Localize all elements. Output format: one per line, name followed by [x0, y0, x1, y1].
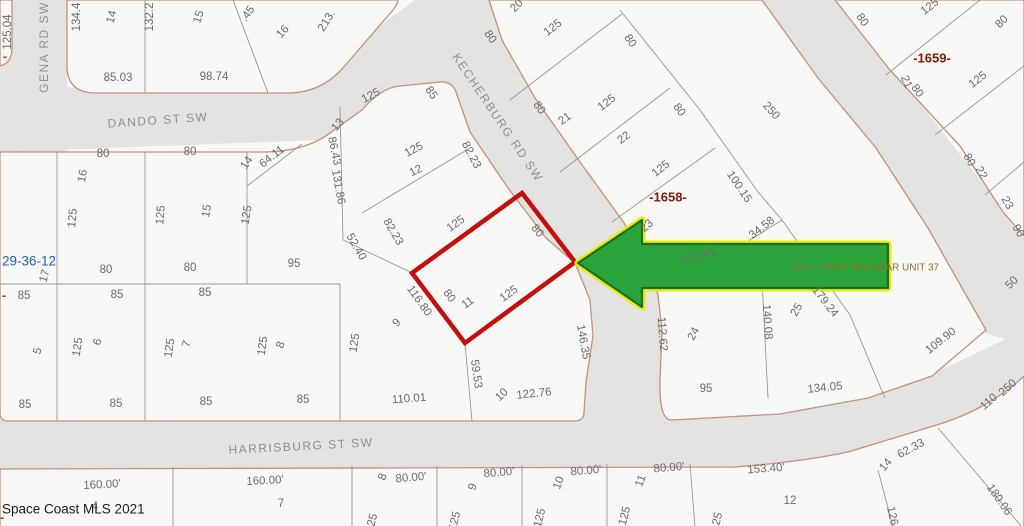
- map-label: 16: [76, 169, 90, 184]
- map-label: 125: [66, 208, 80, 228]
- map-label: 85: [19, 399, 32, 411]
- map-label: 112.62: [655, 316, 669, 351]
- map-label: -: [2, 287, 6, 302]
- street-label: GENA RD SW: [37, 1, 51, 93]
- map-label: 125.04: [2, 14, 14, 50]
- map-label: -: [0, 509, 4, 524]
- map-label: 7: [278, 498, 284, 510]
- map-label: 85.03: [104, 72, 133, 84]
- map-label: 95: [288, 258, 301, 270]
- map-label: 98.74: [200, 71, 229, 83]
- plat-map-screenshot: 125.04-134.414132.215.4516213.85.0398.74…: [0, 0, 1024, 526]
- map-label: -: [3, 48, 7, 63]
- section-label: 29-36-12: [2, 254, 56, 269]
- map-label: 132.2: [144, 3, 156, 32]
- map-label: 80: [100, 264, 113, 276]
- map-label: 160.00': [83, 478, 121, 492]
- plat-number-label: -1659-: [913, 50, 951, 65]
- map-label: 110.01: [391, 392, 426, 406]
- map-label: 80: [97, 148, 110, 160]
- map-label: 95: [700, 383, 713, 395]
- plat-number-label: -1658-: [649, 189, 687, 204]
- map-canvas: 125.04-134.414132.215.4516213.85.0398.74…: [0, 0, 1024, 526]
- map-label: 80: [184, 262, 197, 274]
- map-label: 134.4: [71, 2, 83, 31]
- watermark-label: Space Coast MLS 2021: [2, 502, 145, 517]
- map-label: 85: [110, 398, 123, 410]
- map-label: 125: [154, 205, 168, 225]
- map-label: 160.00': [246, 474, 284, 488]
- map-label: 85: [199, 287, 212, 299]
- map-label: 85: [111, 289, 124, 301]
- map-label: 85: [18, 290, 31, 302]
- map-label: 85: [200, 396, 213, 408]
- map-label: 15: [200, 204, 214, 219]
- map-label: 80: [184, 146, 197, 158]
- map-label: 85: [297, 394, 310, 406]
- map-label: 12: [784, 495, 797, 507]
- map-label: 140.08: [760, 304, 774, 340]
- map-label: #KH - PORT MALABAR UNIT 37: [793, 263, 940, 274]
